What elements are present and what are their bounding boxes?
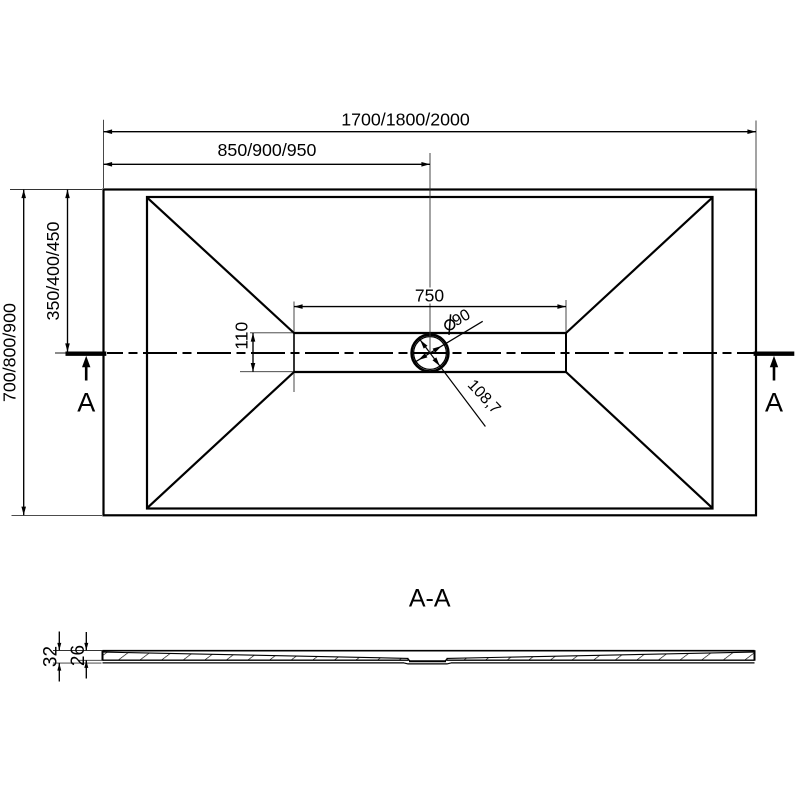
- svg-text:A: A: [77, 388, 95, 418]
- svg-text:750: 750: [415, 285, 444, 305]
- svg-text:32: 32: [40, 646, 61, 667]
- svg-text:108,7: 108,7: [464, 377, 504, 418]
- svg-text:26: 26: [68, 645, 89, 666]
- svg-text:A-A: A-A: [409, 585, 451, 613]
- svg-text:110: 110: [231, 321, 251, 349]
- svg-text:1700/1800/2000: 1700/1800/2000: [341, 110, 470, 130]
- svg-text:700/800/900: 700/800/900: [0, 303, 20, 402]
- svg-text:850/900/950: 850/900/950: [218, 140, 317, 160]
- svg-text:90: 90: [450, 306, 474, 330]
- svg-text:350/400/450: 350/400/450: [43, 221, 63, 320]
- svg-text:A: A: [765, 388, 783, 418]
